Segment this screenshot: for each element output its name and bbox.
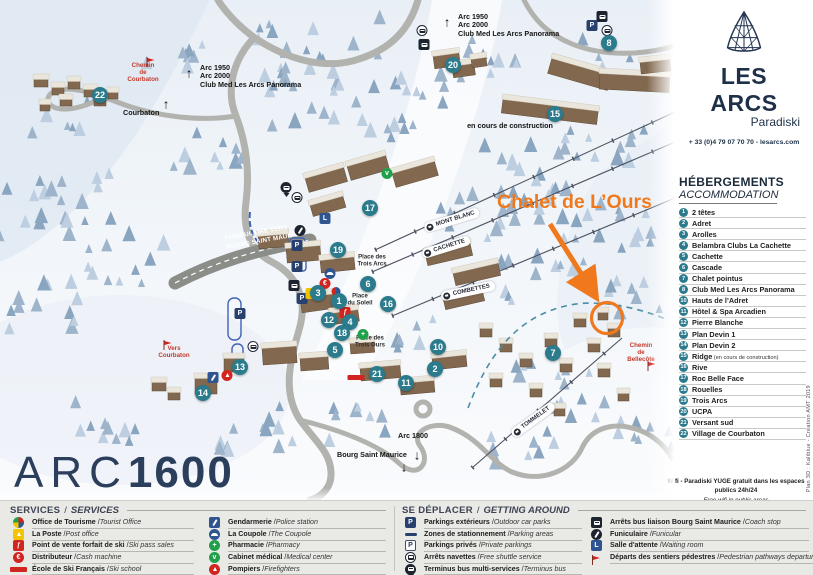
parking-icon: P xyxy=(405,517,416,528)
legend-item-coupole: La Coupole / The Coupole xyxy=(206,529,386,541)
map-marker-1[interactable]: 1 xyxy=(331,293,347,309)
chalet-de-lours-label: Chalet de L’Ours xyxy=(497,191,652,214)
legend-item-gendarmerie: Gendarmerie / Police station xyxy=(206,517,386,529)
getting-around-col-1: PParkings extérieurs / Outdoor car parks… xyxy=(402,517,582,575)
info-panel: LES ARCS Paradiski + 33 (0)4 79 07 70 70… xyxy=(675,0,813,500)
accommodation-item: 2Adret xyxy=(679,218,806,229)
legend-item-dash: Zones de stationnement / Parking areas xyxy=(402,529,582,541)
legend-item-parking: PParkings extérieurs / Outdoor car parks xyxy=(402,517,582,529)
accommodation-list: 12 têtes2Adret3Arolles4Belambra Clubs La… xyxy=(679,207,806,440)
down-arrow-icon: ↓ xyxy=(414,448,421,463)
legend-item-pompiers: Pompiers / Firefighters xyxy=(206,563,386,575)
legend-bar: SERVICES/SERVICES SE DÉPLACER/GETTING AR… xyxy=(0,500,813,575)
map-marker-12[interactable]: 12 xyxy=(321,312,337,328)
legend-item-esf: École de Ski Français / Ski school xyxy=(10,563,194,575)
skipass-icon: f xyxy=(13,540,24,551)
legend-item-label: Pompiers / Firefighters xyxy=(228,563,386,575)
getting-around-title-fr: SE DÉPLACER xyxy=(402,505,473,516)
brand-block: LES ARCS Paradiski + 33 (0)4 79 07 70 70… xyxy=(685,10,803,146)
marker-number-badge: 15 xyxy=(679,352,688,361)
accommodation-item: 16Rive xyxy=(679,362,806,373)
accommodation-item: 17Roc Belle Face xyxy=(679,373,806,384)
waiting-icon: L xyxy=(591,540,602,551)
wifi-note-fr: Wifi - Paradiski YUGE gratuit dans les e… xyxy=(661,477,811,496)
accommodation-name: Chalet pointus xyxy=(692,274,743,283)
direction-label: Bourg Saint Maurice xyxy=(337,451,407,459)
map-marker-8[interactable]: 8 xyxy=(601,35,617,51)
accommodation-item: 14Plan Devin 2 xyxy=(679,340,806,351)
legend-item-label: Terminus bus multi-services / Terminus b… xyxy=(424,563,582,575)
legend-divider xyxy=(394,506,395,571)
parking-icon: P xyxy=(292,261,303,272)
direction-label: Arc 1800 xyxy=(398,432,428,440)
getting-around-title-en: GETTING AROUND xyxy=(484,505,570,516)
construction-note: (en cours de construction) xyxy=(712,355,778,361)
marker-number-badge: 7 xyxy=(679,274,688,283)
down-arrow-icon: ↓ xyxy=(401,460,408,475)
legend-item-poste: La Poste / Post office xyxy=(10,529,194,541)
legend-item-tourisme: Office de Tourisme / Tourist Office xyxy=(10,517,194,529)
gondola-icon xyxy=(425,222,434,231)
accommodation-name: Pierre Blanche xyxy=(692,318,743,327)
legend-item-coach: Arrêts bus liaison Bourg Saint Maurice /… xyxy=(588,517,809,529)
flag-icon xyxy=(593,556,600,560)
accommodation-name: Plan Devin 1 xyxy=(692,330,735,339)
marker-number-badge: 14 xyxy=(679,341,688,350)
funiculaire-icon xyxy=(591,529,602,540)
distributeur-icon: € xyxy=(13,552,24,563)
accommodation-heading-en: ACCOMMODATION xyxy=(679,189,777,204)
accommodation-item: 15Ridge (en cours de construction) xyxy=(679,351,806,362)
tourisme-icon xyxy=(13,517,24,528)
navette-icon xyxy=(292,192,303,203)
accommodation-name: Arolles xyxy=(692,230,717,239)
place-label: Place des Trois Arcs xyxy=(357,254,386,267)
navette-icon xyxy=(248,341,259,352)
map-marker-19[interactable]: 19 xyxy=(330,242,346,258)
accommodation-name: Trois Arcs xyxy=(692,396,727,405)
resort-title-number: 1600 xyxy=(128,448,234,497)
legend-item-label: Départs des sentiers pédestres / Pedestr… xyxy=(610,551,813,564)
legend-item-pharmacie: +Pharmacie / Pharmacy xyxy=(206,540,386,552)
marker-number-badge: 2 xyxy=(679,219,688,228)
coupole-icon xyxy=(325,268,336,279)
coupole-icon xyxy=(209,529,220,540)
accommodation-item: 13Plan Devin 1 xyxy=(679,329,806,340)
map-marker-18[interactable]: 18 xyxy=(334,325,350,341)
map-marker-6[interactable]: 6 xyxy=(360,276,376,292)
legend-item-waiting: LSalle d'attente / Waiting room xyxy=(588,540,809,552)
map-marker-21[interactable]: 21 xyxy=(369,366,385,382)
coach-icon xyxy=(591,517,602,528)
les-arcs-logo-icon xyxy=(723,10,765,56)
services-section-title: SERVICES/SERVICES xyxy=(10,505,386,516)
marker-number-badge: 22 xyxy=(679,429,688,438)
accommodation-name: Cascade xyxy=(692,263,722,272)
esf-icon xyxy=(348,375,365,380)
coach-icon xyxy=(419,39,430,50)
services-col-2: Gendarmerie / Police stationLa Coupole /… xyxy=(206,517,386,575)
marker-number-badge: 8 xyxy=(679,285,688,294)
resort-title: ARC1600 xyxy=(14,448,234,498)
accommodation-name: Adret xyxy=(692,219,711,228)
parking-outline-icon: P xyxy=(405,540,416,551)
accommodation-name: Hôtel & Spa Arcadien xyxy=(692,307,766,316)
map-marker-22[interactable]: 22 xyxy=(92,87,108,103)
legend-item-skipass: fPoint de vente forfait de ski / Ski pas… xyxy=(10,540,194,552)
legend-item-parking-outline: PParkings privés / Private parkings xyxy=(402,540,582,552)
flag-icon xyxy=(148,58,155,62)
accommodation-item: 20UCPA xyxy=(679,407,806,418)
accommodation-name: UCPA xyxy=(692,407,712,416)
poste-icon xyxy=(13,529,24,540)
map-marker-16[interactable]: 16 xyxy=(380,296,396,312)
flag-icon xyxy=(165,341,172,345)
map-marker-11[interactable]: 11 xyxy=(398,375,414,391)
marker-number-badge: 11 xyxy=(679,307,688,316)
pompiers-icon xyxy=(209,564,220,575)
map-marker-7[interactable]: 7 xyxy=(545,345,561,361)
pompiers-icon xyxy=(222,370,233,381)
legend-item-terminus: Terminus bus multi-services / Terminus b… xyxy=(402,563,582,575)
accommodation-item: 7Chalet pointus xyxy=(679,274,806,285)
marker-number-badge: 4 xyxy=(679,241,688,250)
brand-subtitle: Paradiski xyxy=(685,115,803,129)
esf-icon xyxy=(10,567,27,572)
medical-icon: v xyxy=(382,168,393,179)
accommodation-name: Ridge (en cours de construction) xyxy=(692,352,779,361)
map-marker-20[interactable]: 20 xyxy=(445,57,461,73)
getting-around-section-title: SE DÉPLACER/GETTING AROUND xyxy=(402,505,806,516)
place-label: Place du Soleil xyxy=(347,293,372,306)
gondola-icon xyxy=(442,291,450,299)
accommodation-item: 12 têtes xyxy=(679,207,806,218)
legend-item-label: École de Ski Français / Ski school xyxy=(32,563,194,575)
pharmacie-icon: + xyxy=(358,329,369,340)
marker-number-badge: 17 xyxy=(679,374,688,383)
legend-item-navette: Arrêts navettes / Free shuttle service xyxy=(402,552,582,564)
accommodation-name: Hauts de l’Adret xyxy=(692,296,748,305)
marker-number-badge: 18 xyxy=(679,385,688,394)
marker-number-badge: 10 xyxy=(679,296,688,305)
pharmacie-icon: + xyxy=(209,540,220,551)
up-arrow-icon: ↑ xyxy=(186,66,193,81)
marker-number-badge: 16 xyxy=(679,363,688,372)
accommodation-name: Rive xyxy=(692,363,707,372)
gondola-icon xyxy=(512,427,522,437)
accommodation-item: 6Cascade xyxy=(679,262,806,273)
getting-around-col-2: Arrêts bus liaison Bourg Saint Maurice /… xyxy=(588,517,809,563)
resort-title-prefix: ARC xyxy=(14,448,128,497)
accommodation-name: Versant sud xyxy=(692,418,733,427)
marker-number-badge: 21 xyxy=(679,418,688,427)
marker-number-badge: 12 xyxy=(679,318,688,327)
accommodation-item: 3Arolles xyxy=(679,229,806,240)
accommodation-name: Belambra Clubs La Cachette xyxy=(692,241,791,250)
map-area[interactable]: FUNICULAIRE VERS BOURG SAINT MAURICE en … xyxy=(0,0,675,500)
legend-item-medical: vCabinet médical / Medical center xyxy=(206,552,386,564)
accommodation-item: 21Versant sud xyxy=(679,418,806,429)
legend-item-distributeur: €Distributeur / Cash machine xyxy=(10,552,194,564)
accommodation-name: 2 têtes xyxy=(692,208,715,217)
terminus-icon xyxy=(405,564,416,575)
accommodation-name: Club Med Les Arcs Panorama xyxy=(692,285,795,294)
accommodation-heading-fr: HÉBERGEMENTS xyxy=(679,175,806,189)
brand-name: LES ARCS xyxy=(685,63,803,117)
accommodation-item: 4Belambra Clubs La Cachette xyxy=(679,240,806,251)
gondola-icon xyxy=(423,248,432,257)
marker-number-badge: 13 xyxy=(679,330,688,339)
accommodation-name: Cachette xyxy=(692,252,723,261)
accommodation-item: 19Trois Arcs xyxy=(679,396,806,407)
legend-item-flag: Départs des sentiers pédestres / Pedestr… xyxy=(588,552,809,564)
accommodation-item: 8Club Med Les Arcs Panorama xyxy=(679,285,806,296)
accommodation-name: Roc Belle Face xyxy=(692,374,744,383)
marker-number-badge: 6 xyxy=(679,263,688,272)
accommodation-item: 18Rouelles xyxy=(679,385,806,396)
accommodation-item: 10Hauts de l’Adret xyxy=(679,296,806,307)
accommodation-block: HÉBERGEMENTS ACCOMMODATION 12 têtes2Adre… xyxy=(679,175,806,440)
map-marker-15[interactable]: 15 xyxy=(547,106,563,122)
direction-label: Arc 1950 Arc 2000 Club Med Les Arcs Pano… xyxy=(458,13,559,38)
map-marker-14[interactable]: 14 xyxy=(195,385,211,401)
map-marker-3[interactable]: 3 xyxy=(310,285,326,301)
marker-number-badge: 5 xyxy=(679,252,688,261)
terminus-icon xyxy=(281,182,292,193)
legend-item-funiculaire: Funiculaire / Funicular xyxy=(588,529,809,541)
accommodation-item: 12Pierre Blanche xyxy=(679,318,806,329)
gendarmerie-icon xyxy=(208,372,219,383)
direction-label: Courbaton xyxy=(123,109,159,117)
medical-icon: v xyxy=(209,552,220,563)
marker-number-badge: 19 xyxy=(679,396,688,405)
services-title-fr: SERVICES xyxy=(10,505,60,516)
resort-map-page: FUNICULAIRE VERS BOURG SAINT MAURICE en … xyxy=(0,0,813,575)
dash-icon xyxy=(405,533,417,536)
marker-number-badge: 3 xyxy=(679,230,688,239)
accommodation-name: Plan Devin 2 xyxy=(692,341,735,350)
construction-note: en cours de construction xyxy=(467,121,553,130)
map-marker-2[interactable]: 2 xyxy=(427,361,443,377)
accommodation-item: 5Cachette xyxy=(679,251,806,262)
direction-label: Arc 1950 Arc 2000 Club Med Les Arcs Pano… xyxy=(200,64,301,89)
marker-number-badge: 1 xyxy=(679,208,688,217)
marker-number-badge: 20 xyxy=(679,407,688,416)
parking-icon: P xyxy=(292,240,303,251)
accommodation-item: 22Village de Courbaton xyxy=(679,429,806,440)
accommodation-name: Village de Courbaton xyxy=(692,429,765,438)
map-marker-13[interactable]: 13 xyxy=(232,359,248,375)
map-marker-10[interactable]: 10 xyxy=(430,339,446,355)
accommodation-item: 11Hôtel & Spa Arcadien xyxy=(679,307,806,318)
brand-contact: + 33 (0)4 79 07 70 70 - lesarcs.com xyxy=(685,139,803,146)
navette-icon xyxy=(405,552,416,563)
accommodation-name: Rouelles xyxy=(692,385,722,394)
flag-icon xyxy=(649,362,656,366)
waiting-icon: L xyxy=(320,213,331,224)
map-marker-17[interactable]: 17 xyxy=(362,200,378,216)
services-col-1: Office de Tourisme / Tourist OfficeLa Po… xyxy=(10,517,194,575)
map-marker-5[interactable]: 5 xyxy=(327,342,343,358)
parking-icon: P xyxy=(235,308,246,319)
services-title-en: SERVICES xyxy=(71,505,119,516)
up-arrow-icon: ↑ xyxy=(444,15,451,30)
gendarmerie-icon xyxy=(209,517,220,528)
up-arrow-icon: ↑ xyxy=(163,97,170,112)
